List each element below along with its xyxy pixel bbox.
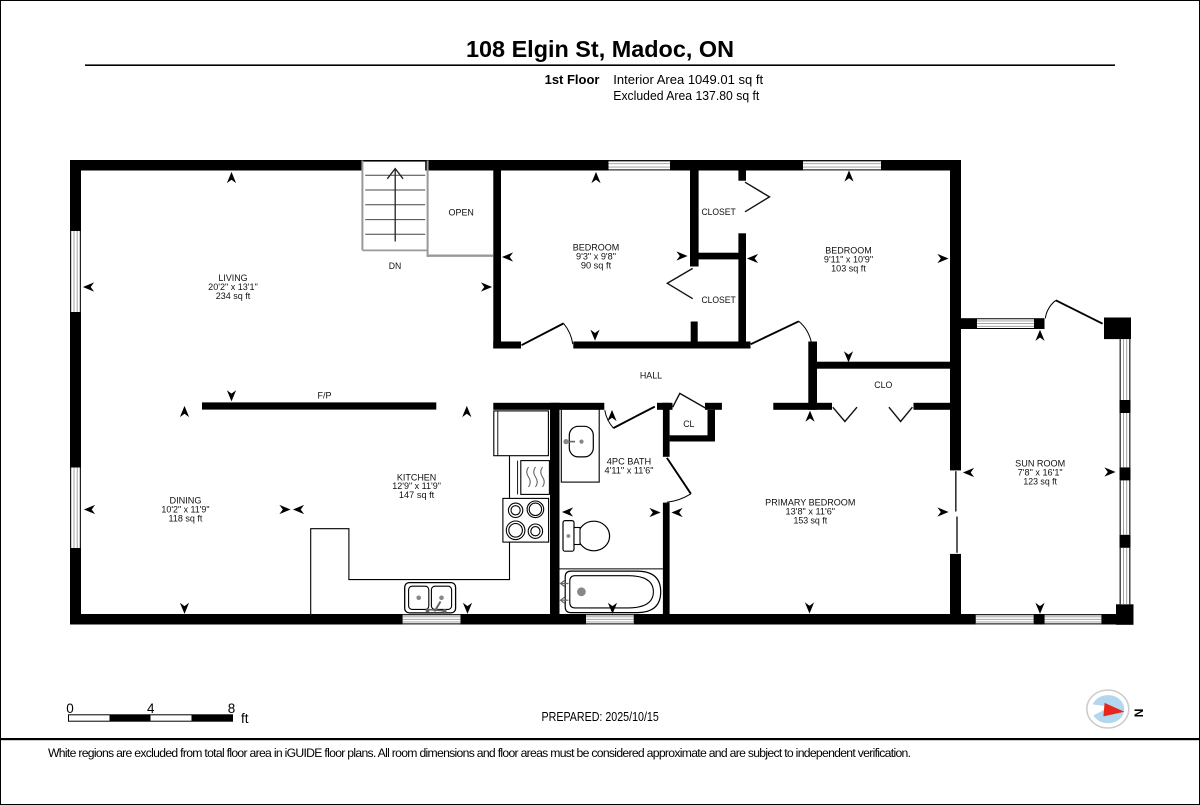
svg-text:Excluded Area 137.80 sq ft: Excluded Area 137.80 sq ft — [613, 88, 759, 103]
svg-text:ft: ft — [241, 711, 249, 726]
svg-text:HALL: HALL — [640, 371, 662, 381]
svg-text:CLO: CLO — [874, 380, 892, 390]
svg-text:0: 0 — [66, 701, 74, 716]
svg-text:103 sq ft: 103 sq ft — [831, 263, 866, 273]
svg-text:118 sq ft: 118 sq ft — [169, 514, 203, 524]
svg-text:CLOSET: CLOSET — [701, 207, 736, 217]
svg-text:234 sq ft: 234 sq ft — [216, 291, 251, 301]
svg-text:White regions are excluded fro: White regions are excluded from total fl… — [48, 746, 911, 760]
svg-text:PREPARED: 2025/10/15: PREPARED: 2025/10/15 — [542, 710, 659, 724]
svg-text:OPEN: OPEN — [449, 208, 474, 218]
svg-text:Interior Area 1049.01 sq ft: Interior Area 1049.01 sq ft — [613, 72, 763, 87]
svg-text:147 sq ft: 147 sq ft — [399, 490, 435, 500]
svg-text:CL: CL — [683, 419, 694, 429]
svg-text:153 sq ft: 153 sq ft — [793, 515, 827, 525]
svg-text:8: 8 — [228, 701, 236, 716]
svg-text:90 sq ft: 90 sq ft — [581, 260, 612, 270]
svg-text:N: N — [1132, 709, 1146, 718]
svg-text:1st Floor: 1st Floor — [545, 72, 600, 87]
svg-text:123 sq ft: 123 sq ft — [1023, 476, 1057, 486]
svg-text:4: 4 — [147, 701, 155, 716]
svg-text:F/P: F/P — [318, 390, 332, 400]
svg-text:CLOSET: CLOSET — [701, 295, 736, 305]
svg-text:4'11" x 11'6": 4'11" x 11'6" — [605, 465, 654, 475]
svg-text:108 Elgin St, Madoc, ON: 108 Elgin St, Madoc, ON — [466, 36, 734, 62]
svg-text:DN: DN — [389, 261, 402, 271]
